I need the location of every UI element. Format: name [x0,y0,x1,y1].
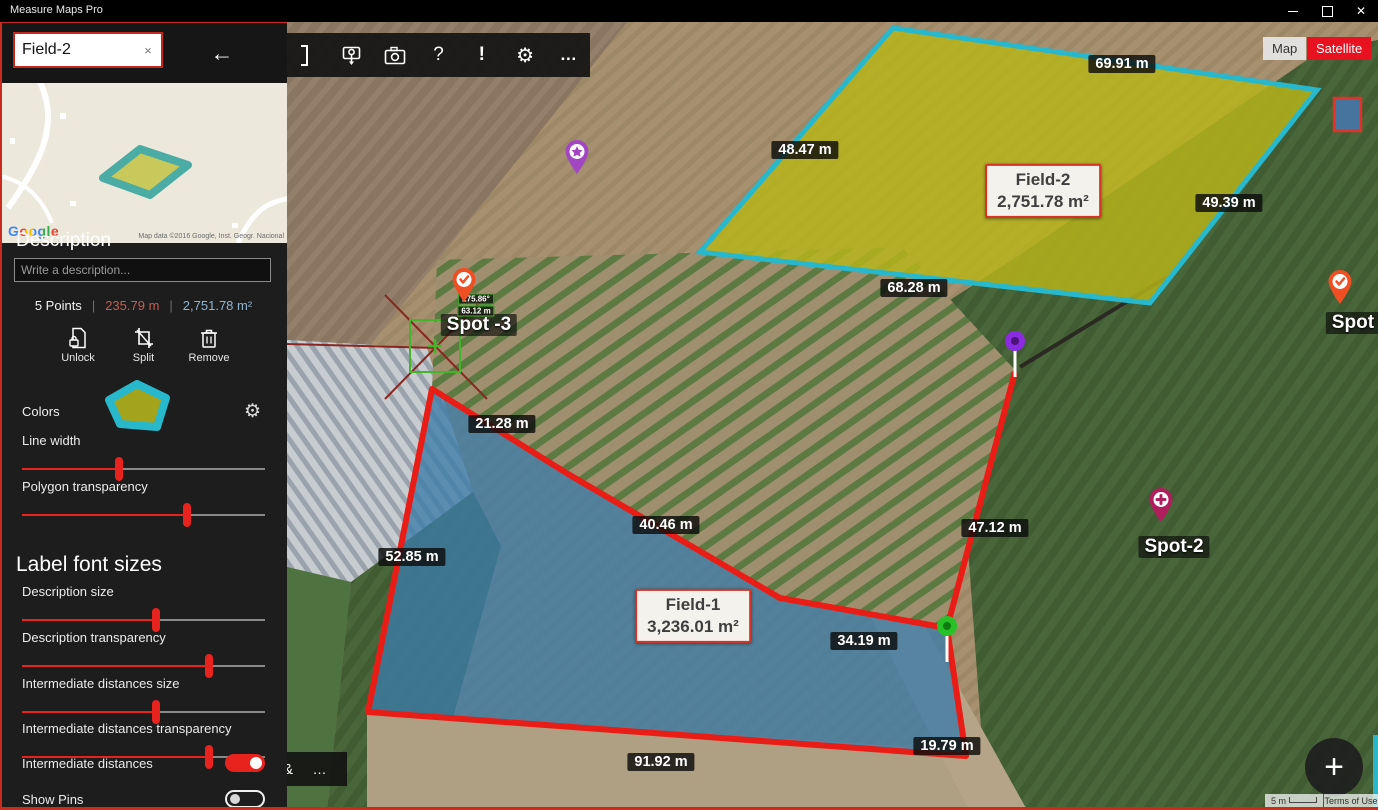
scale-label: 5 m [1271,796,1286,806]
help-button[interactable]: ? [417,33,460,77]
stat-divider: | [92,298,95,313]
pin-stem [1014,349,1017,377]
window-title: Measure Maps Pro [10,4,103,16]
map-attribution: Map data ©2016 Google, Inst. Geogr. Naci… [138,233,284,240]
search-value: Field-2 [15,41,135,59]
settings-button[interactable]: ⚙ [503,33,546,77]
terms-label: Terms of Use [1324,796,1377,806]
spot-label: Spot -4 [1326,312,1378,334]
mini-toolbar: & … [287,752,347,786]
line-width-slider[interactable]: Line width [22,433,265,481]
description-input[interactable]: Write a description... [14,258,271,282]
check-pin-spot4[interactable] [1327,269,1353,310]
distance-label: 69.91 m [1088,55,1155,73]
small-field-square [1334,98,1361,131]
action-buttons: Unlock Split Remove [52,327,235,364]
spot-label: Spot-2 [1138,536,1209,558]
perimeter-value: 235.79 m [105,298,159,313]
satellite-view-button[interactable]: Satellite [1307,37,1371,60]
pin-board-icon [341,45,362,66]
field1-label-box[interactable]: Field-1 3,236.01 m² [635,589,751,643]
star-pin[interactable] [564,139,590,180]
spot-label: Spot -3 [441,314,517,336]
split-button[interactable]: Split [118,327,170,364]
field-area: 3,236.01 m² [647,616,739,638]
sidebar-header: Field-2 × ← [0,22,287,83]
window-accent-left [0,22,2,810]
intermediate-distances-toggle[interactable] [225,754,265,772]
description-placeholder: Write a description... [21,263,130,277]
search-input[interactable]: Field-2 × [13,32,163,68]
measure-maps-pro-window: Measure Maps Pro ✕ [0,0,1378,810]
map-view-label: Map [1272,41,1297,56]
back-arrow-icon: ← [211,40,234,67]
action-label: Split [133,352,154,364]
close-icon: ✕ [1356,4,1366,18]
map-toolbar: ? ! ⚙ … [287,33,590,77]
measurement-stats: 5 Points | 235.79 m | 2,751.78 m² [0,298,287,313]
more-button[interactable]: … [547,33,590,77]
plus-icon: + [1324,748,1344,787]
distance-label: 40.46 m [632,516,699,534]
split-crop-icon [134,327,154,349]
action-label: Unlock [61,352,95,364]
field-name: Field-2 [997,169,1089,191]
title-bar: Measure Maps Pro ✕ [0,0,1378,22]
clipped-panel-button[interactable] [287,33,330,77]
remove-button[interactable]: Remove [183,327,235,364]
distance-label: 34.19 m [830,632,897,650]
plus-pin-spot2[interactable] [1148,487,1174,528]
show-pins-toggle[interactable] [225,790,265,808]
distance-label: 47.12 m [961,519,1028,537]
satellite-view-label: Satellite [1316,41,1362,56]
description-heading: Description [16,230,111,252]
field2-label-box[interactable]: Field-2 2,751.78 m² [985,164,1101,218]
check-pin-spot3[interactable] [451,267,477,308]
minimap[interactable]: Google Map data ©2016 Google, Inst. Geog… [0,83,287,243]
pin-stem [946,634,949,662]
map-view-button[interactable]: Map [1263,37,1306,60]
polygon-color-swatch[interactable] [100,380,174,441]
add-measurement-button[interactable]: + [1305,738,1363,796]
mini-more-button[interactable]: … [293,761,347,777]
distance-label: 19.79 m [913,737,980,755]
camera-button[interactable] [374,33,417,77]
distance-label: 68.28 m [880,279,947,297]
action-label: Remove [189,352,230,364]
ellipsis-icon: … [560,45,577,65]
color-settings-gear-icon[interactable]: ⚙ [244,400,261,423]
slider-thumb[interactable] [183,503,191,527]
lock-document-icon [68,327,88,349]
minimize-button[interactable] [1276,0,1310,22]
stat-divider: | [169,298,172,313]
minimap-graphic [0,83,287,243]
gear-icon: ⚙ [516,43,534,68]
terms-of-use[interactable]: Terms of Use [1324,794,1378,808]
area-value: 2,751.78 m² [183,298,252,313]
distance-label: 91.92 m [627,753,694,771]
close-button[interactable]: ✕ [1344,0,1378,22]
maximize-button[interactable] [1310,0,1344,22]
camera-icon [384,46,406,65]
trash-icon [199,327,219,349]
polygon-transparency-slider[interactable]: Polygon transparency [22,479,265,527]
pin-board-button[interactable] [330,33,373,77]
field-area: 2,751.78 m² [997,191,1089,213]
map-canvas[interactable]: ? ! ⚙ … Map Satellite 69.91 m 48.47 m 49… [287,22,1378,810]
distance-label: 48.47 m [771,141,838,159]
alert-button[interactable]: ! [460,33,503,77]
help-icon: ? [433,44,444,66]
field-name: Field-1 [647,594,739,616]
back-button[interactable]: ← [205,36,239,70]
slider-thumb[interactable] [115,457,123,481]
scale-bracket [1289,797,1317,803]
pin-head [1005,331,1025,351]
maximize-icon [1322,6,1333,17]
clear-search-icon[interactable]: × [135,43,161,58]
distance-label: 52.85 m [378,548,445,566]
alert-icon: ! [479,44,485,66]
points-count: 5 Points [35,298,82,313]
sidebar: Field-2 × ← Google Map data ©2016 Google… [0,22,287,810]
pin-head [937,616,957,636]
colors-label: Colors [22,404,60,419]
clipped-icon [301,45,308,66]
distance-label: 21.28 m [468,415,535,433]
minimize-icon [1288,11,1298,12]
unlock-button[interactable]: Unlock [52,327,104,364]
intermediate-distances-toggle-row: Intermediate distances [22,752,265,774]
scale-bar: 5 m [1265,794,1323,808]
distance-label: 49.39 m [1195,194,1262,212]
